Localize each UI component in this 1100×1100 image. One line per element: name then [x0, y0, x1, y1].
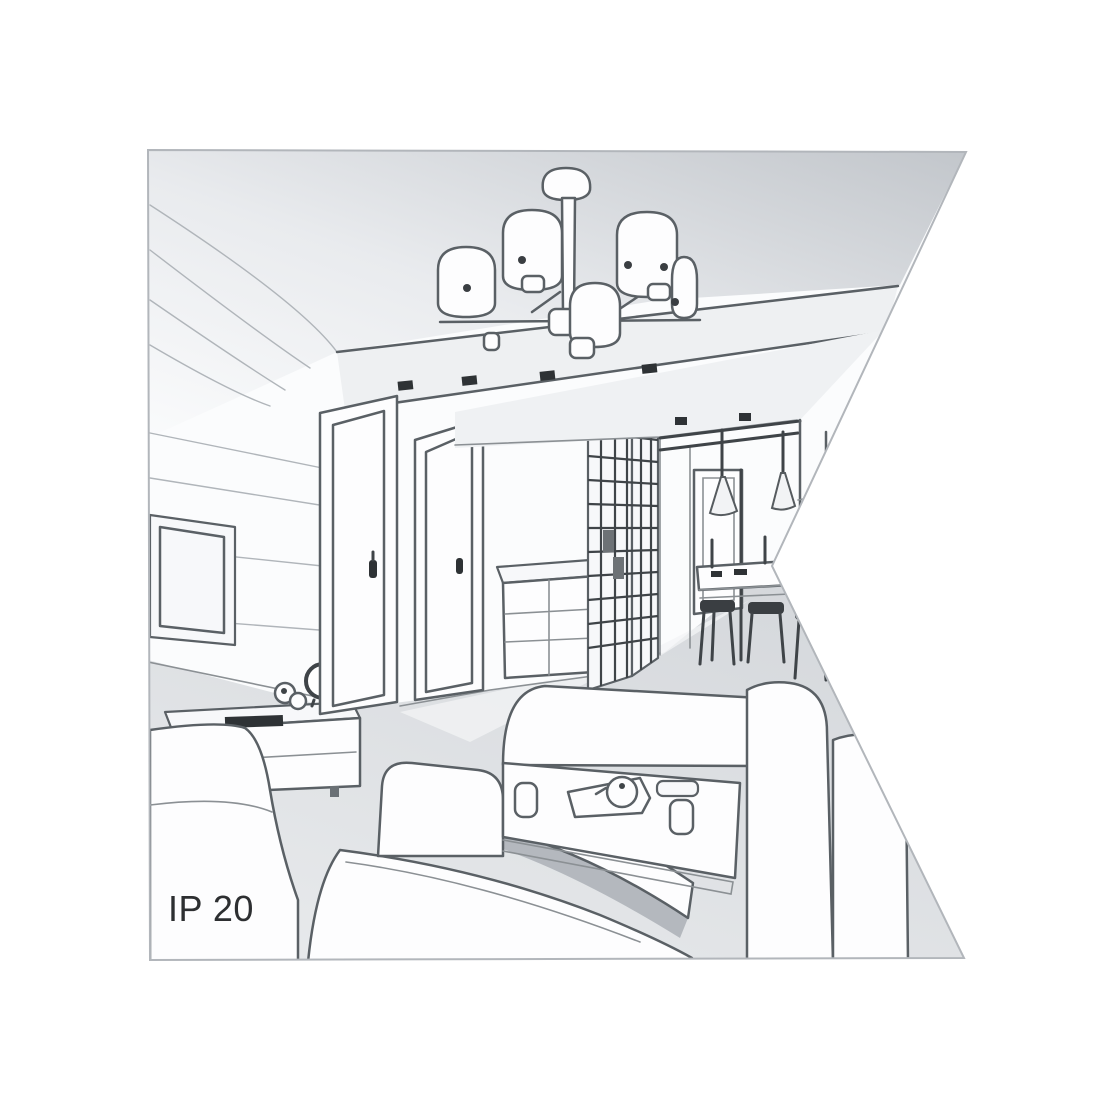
- door-right: [415, 419, 483, 700]
- drawer-chest: [497, 560, 596, 678]
- tv-frame: [150, 515, 235, 645]
- room-sketch: IP 20: [0, 0, 1100, 1100]
- right-armrest: [747, 682, 833, 962]
- corner-sofa: [503, 686, 760, 766]
- ip-rating-label: IP 20: [168, 888, 254, 929]
- door-left: [320, 396, 397, 714]
- product-context-illustration: IP 20: [0, 0, 1100, 1100]
- remote-control: [657, 781, 698, 796]
- teacup: [515, 783, 537, 817]
- teacup: [670, 800, 693, 834]
